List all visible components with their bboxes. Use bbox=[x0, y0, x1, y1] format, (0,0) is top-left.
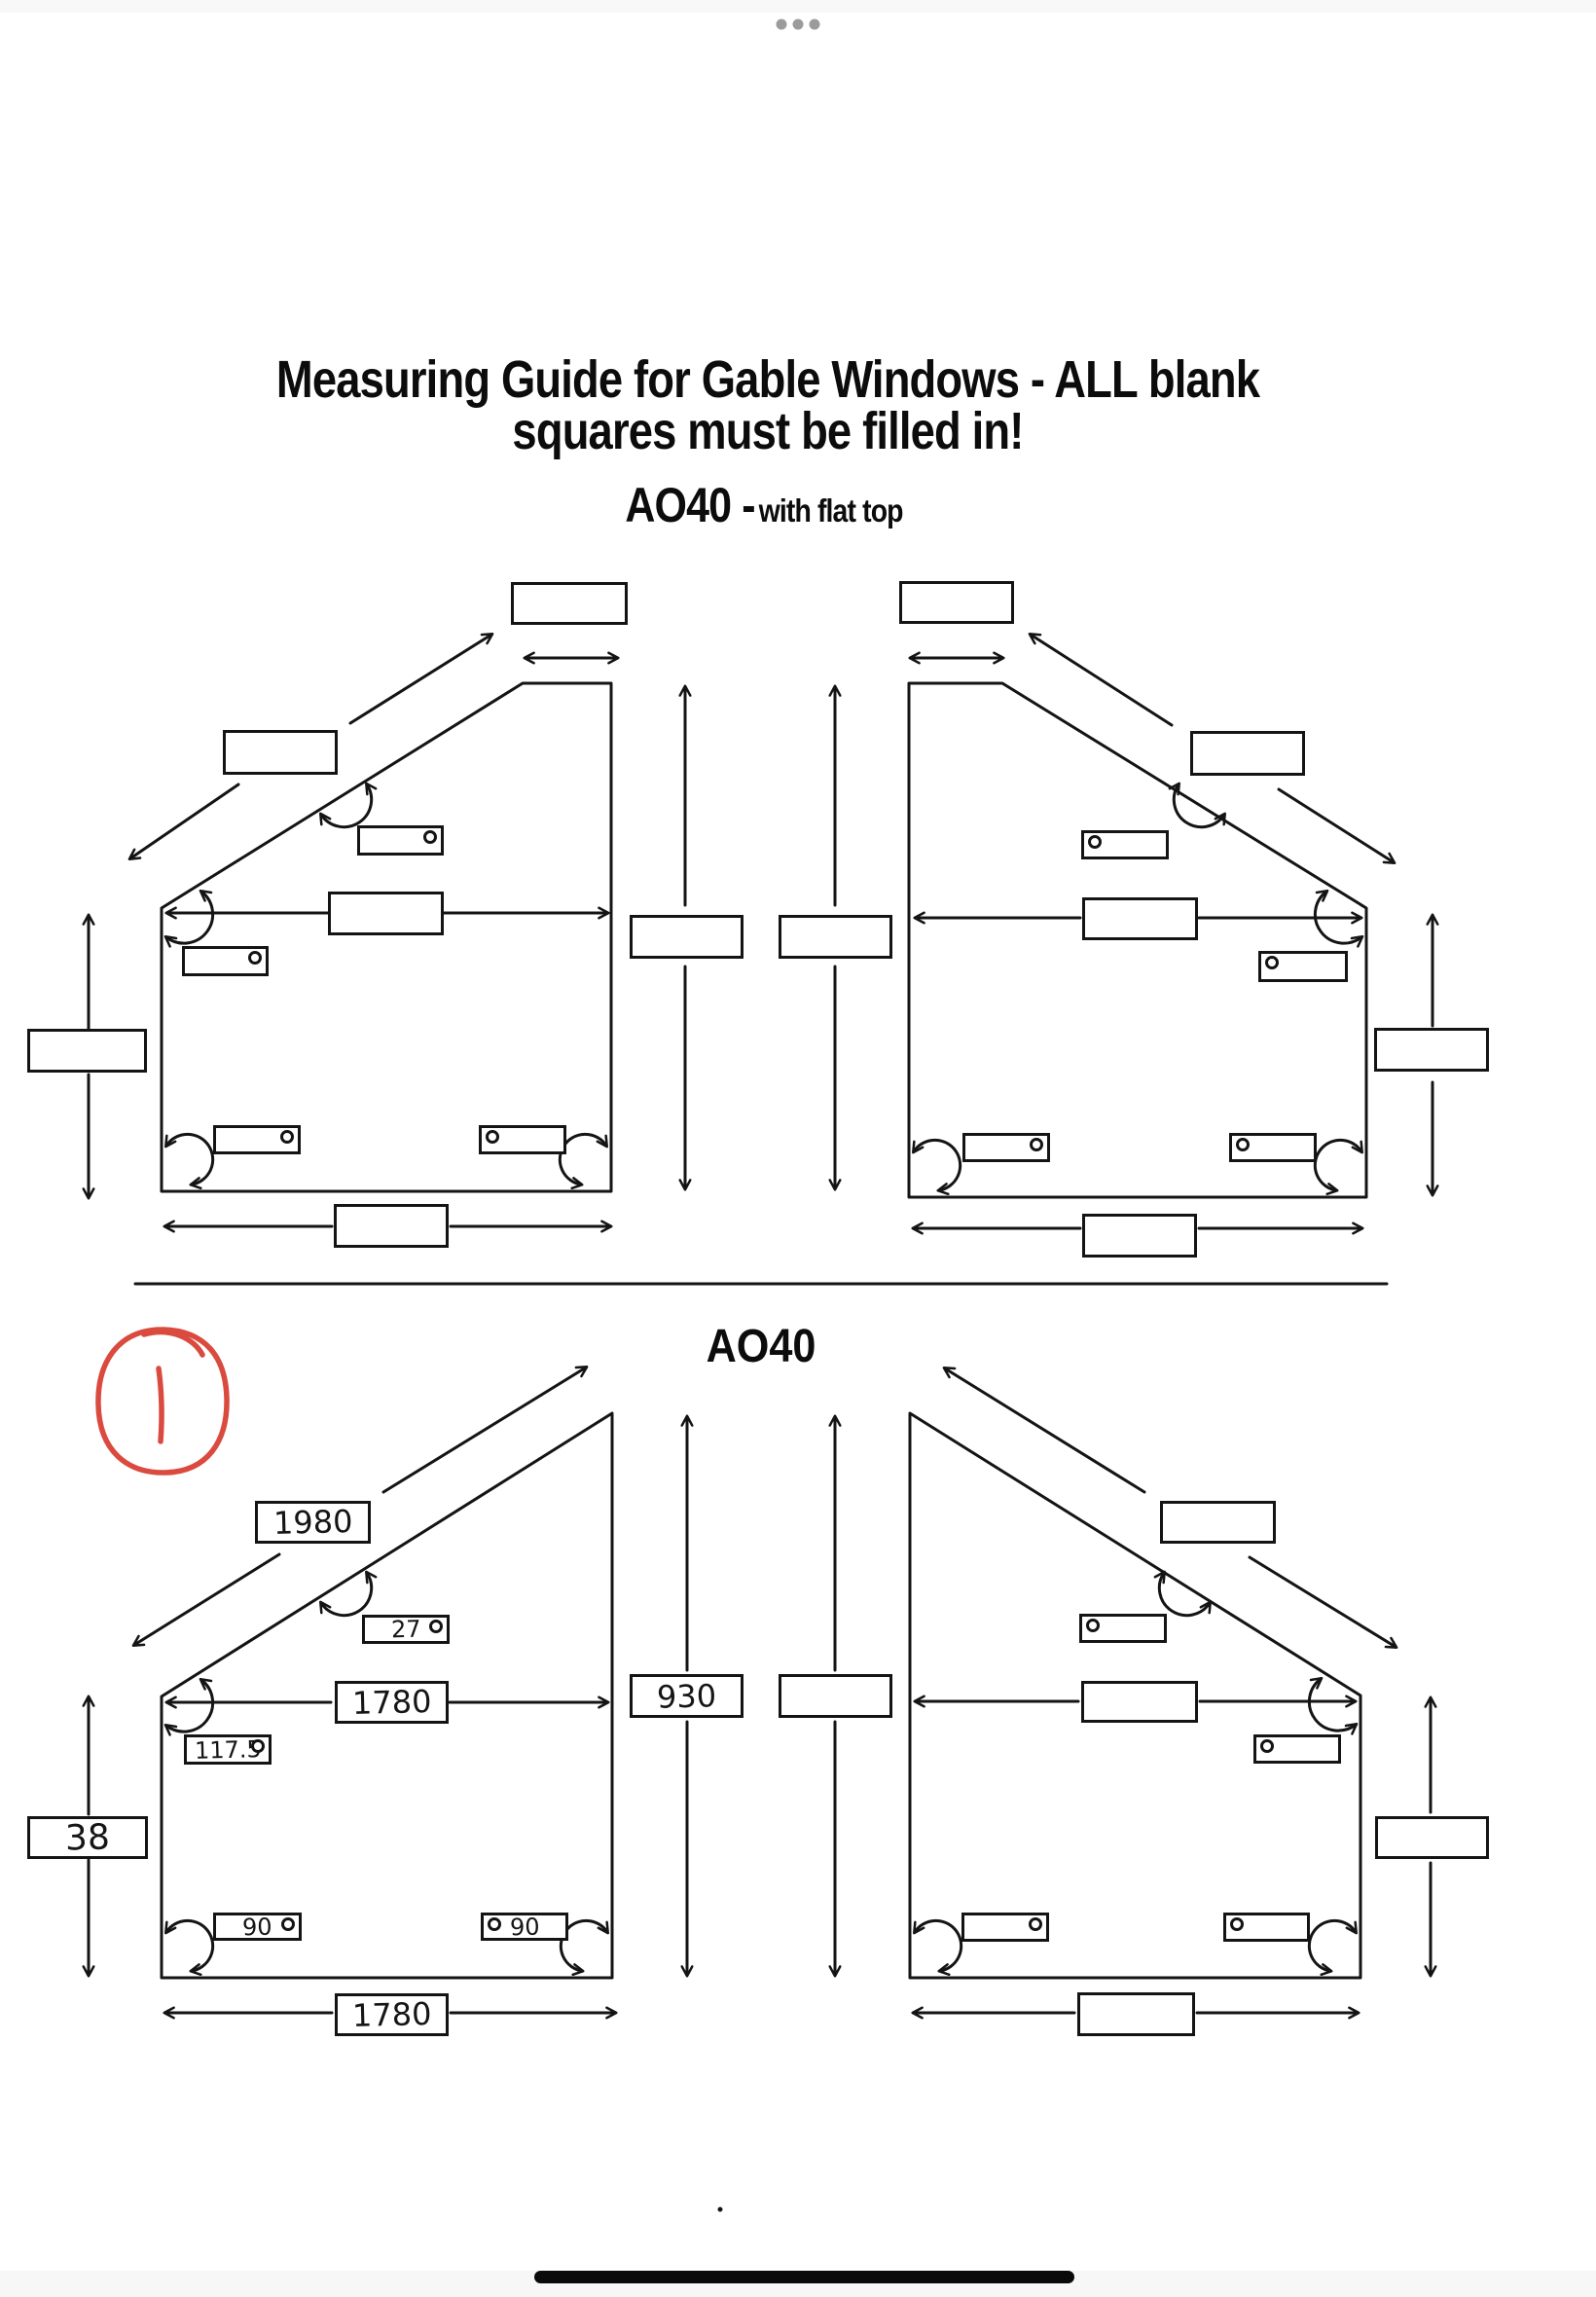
s2-right-bottom-right-angle-box[interactable] bbox=[1223, 1913, 1310, 1942]
degree-dot-icon bbox=[1088, 835, 1102, 849]
s2-left-slope-angle-box[interactable]: 27 bbox=[362, 1615, 450, 1644]
s2-left-side-height-box[interactable]: 38 bbox=[27, 1816, 148, 1859]
s1-center-height-a-box[interactable] bbox=[630, 915, 744, 959]
page-title: Measuring Guide for Gable Windows - ALL … bbox=[97, 354, 1438, 457]
degree-dot-icon bbox=[281, 1917, 295, 1931]
section2-title: AO40 bbox=[43, 1320, 1479, 1373]
s1-right-side-height-box[interactable] bbox=[1374, 1028, 1489, 1072]
s2-right-bottom-left-angle-box[interactable] bbox=[961, 1913, 1049, 1942]
s1-right-bottom-left-angle-box[interactable] bbox=[962, 1133, 1050, 1162]
s2-right-side-height-box[interactable] bbox=[1375, 1816, 1489, 1859]
section1-title-suffix: with flat top bbox=[759, 492, 903, 529]
s2-right-corner-angle-box[interactable] bbox=[1253, 1734, 1341, 1764]
degree-dot-icon bbox=[1260, 1739, 1274, 1753]
degree-dot-icon bbox=[251, 1739, 265, 1753]
s1-left-bottom-right-angle-box[interactable] bbox=[479, 1125, 566, 1154]
s2-center-height-b-box[interactable] bbox=[779, 1674, 892, 1718]
s1-right-corner-angle-box[interactable] bbox=[1258, 951, 1348, 982]
s2-left-mid-width-box[interactable]: 1780 bbox=[335, 1681, 449, 1724]
degree-dot-icon bbox=[1029, 1917, 1042, 1931]
s1-right-bottom-width-box[interactable] bbox=[1082, 1214, 1197, 1258]
s1-left-bottom-left-angle-box[interactable] bbox=[213, 1125, 301, 1154]
s1-left-top-width-box[interactable] bbox=[511, 582, 628, 625]
degree-dot-icon bbox=[248, 951, 262, 965]
annotation-digit-stroke bbox=[159, 1368, 162, 1441]
window-drag-handle-dots-icon[interactable] bbox=[777, 19, 820, 30]
s1-left-corner-angle-box[interactable] bbox=[182, 946, 269, 976]
footer-period-dot bbox=[718, 2207, 723, 2212]
s1-left-mid-width-box[interactable] bbox=[328, 892, 444, 935]
degree-dot-icon bbox=[1236, 1138, 1250, 1151]
s1-left-slope-angle-box[interactable] bbox=[357, 825, 444, 856]
s2-left-bottom-left-angle-box[interactable]: 90 bbox=[213, 1913, 302, 1941]
s2-left-bottom-width-box[interactable]: 1780 bbox=[335, 1993, 449, 2036]
degree-dot-icon bbox=[1230, 1917, 1244, 1931]
degree-dot-icon bbox=[280, 1130, 294, 1144]
s1-right-bottom-right-angle-box[interactable] bbox=[1229, 1133, 1317, 1162]
degree-dot-icon bbox=[486, 1130, 499, 1144]
s1-left-slope-length-box[interactable] bbox=[223, 730, 338, 775]
home-indicator-icon[interactable] bbox=[534, 2271, 1074, 2283]
degree-dot-icon bbox=[1030, 1138, 1043, 1151]
section1-title-main: AO40 - bbox=[625, 478, 754, 532]
degree-dot-icon bbox=[429, 1620, 443, 1633]
degree-dot-icon bbox=[423, 830, 437, 844]
s1-right-top-width-box[interactable] bbox=[899, 581, 1014, 624]
s2-left-slope-length-box[interactable]: 1980 bbox=[255, 1501, 371, 1544]
page-title-line1: Measuring Guide for Gable Windows - ALL … bbox=[97, 354, 1438, 406]
s2-right-mid-width-box[interactable] bbox=[1081, 1681, 1198, 1723]
s1-right-slope-angle-box[interactable] bbox=[1081, 830, 1169, 859]
s1-right-slope-length-box[interactable] bbox=[1190, 731, 1305, 776]
s2-center-height-a-box[interactable]: 930 bbox=[630, 1674, 744, 1718]
s2-left-corner-angle-box[interactable]: 117.5 bbox=[184, 1734, 272, 1765]
page-title-line2: squares must be filled in! bbox=[97, 406, 1438, 457]
s2-right-bottom-width-box[interactable] bbox=[1077, 1992, 1195, 2036]
s2-right-slope-angle-box[interactable] bbox=[1079, 1614, 1167, 1643]
s1-left-bottom-width-box[interactable] bbox=[334, 1204, 449, 1248]
section1-title: AO40 - with flat top bbox=[78, 477, 1450, 533]
s2-left-bottom-right-angle-box[interactable]: 90 bbox=[481, 1913, 568, 1941]
s1-right-mid-width-box[interactable] bbox=[1082, 897, 1198, 940]
degree-dot-icon bbox=[1086, 1619, 1100, 1632]
measuring-guide-page: Measuring Guide for Gable Windows - ALL … bbox=[0, 0, 1596, 2297]
degree-dot-icon bbox=[488, 1917, 501, 1931]
degree-dot-icon bbox=[1265, 956, 1279, 969]
s1-left-side-height-box[interactable] bbox=[27, 1029, 147, 1073]
s1-center-height-b-box[interactable] bbox=[779, 915, 892, 959]
s2-right-slope-length-box[interactable] bbox=[1160, 1501, 1276, 1544]
